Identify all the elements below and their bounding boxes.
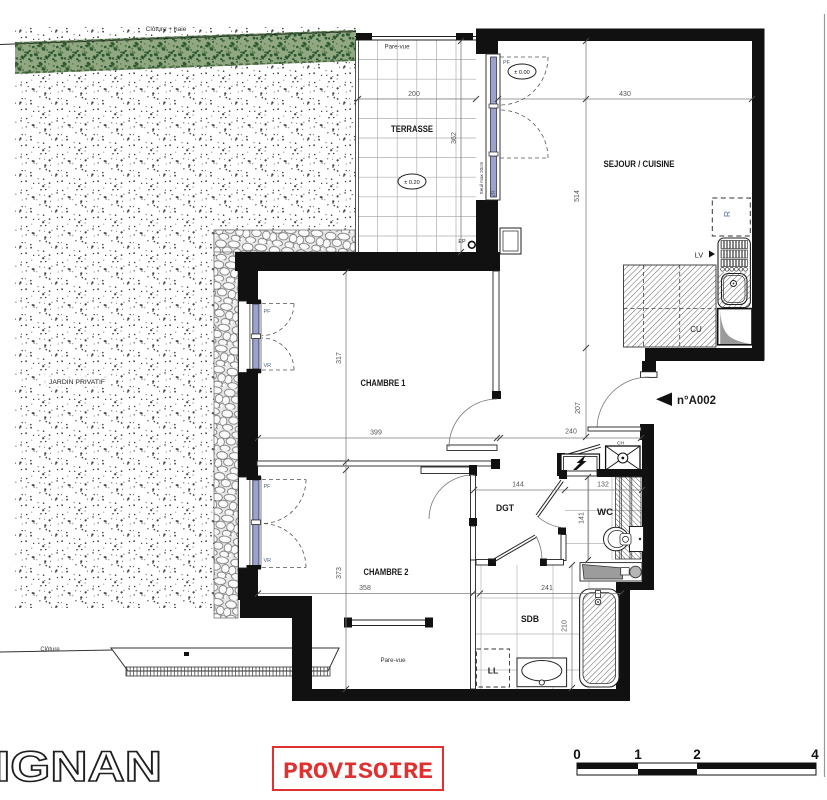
svg-text:240: 240 (565, 429, 577, 436)
svg-text:210: 210 (562, 620, 569, 632)
svg-text:± 0.00: ± 0.00 (514, 70, 530, 76)
svg-text:EP: EP (458, 239, 466, 245)
svg-text:132: 132 (597, 482, 609, 489)
svg-text:VR: VR (491, 190, 497, 197)
svg-text:373: 373 (336, 567, 343, 579)
svg-text:VR: VR (264, 363, 272, 369)
svg-text:Clôture: Clôture (40, 647, 60, 653)
svg-text:362: 362 (451, 132, 458, 144)
svg-text:PF: PF (264, 309, 272, 315)
svg-text:4: 4 (811, 747, 819, 762)
svg-text:LL: LL (488, 666, 498, 676)
svg-text:317: 317 (336, 352, 343, 364)
svg-text:Seuil max 20cm: Seuil max 20cm (479, 161, 484, 194)
svg-text:JARDIN PRIVATIF: JARDIN PRIVATIF (49, 379, 105, 386)
svg-text:Pare-vue: Pare-vue (384, 44, 410, 51)
svg-text:n°A002: n°A002 (677, 393, 716, 407)
svg-text:2: 2 (693, 747, 701, 762)
svg-text:0: 0 (573, 747, 581, 762)
svg-text:SEJOUR / CUISINE: SEJOUR / CUISINE (604, 159, 675, 170)
svg-text:± 0.20: ± 0.20 (404, 180, 420, 186)
svg-text:CHAMBRE 2: CHAMBRE 2 (364, 567, 409, 578)
svg-text:CH: CH (617, 441, 624, 447)
svg-text:Clôture + haie: Clôture + haie (146, 26, 187, 33)
svg-text:DGT: DGT (496, 503, 514, 514)
svg-text:R: R (722, 211, 732, 217)
svg-text:LV: LV (695, 251, 704, 260)
svg-text:207: 207 (575, 402, 582, 414)
svg-text:399: 399 (370, 430, 382, 437)
svg-text:358: 358 (359, 585, 371, 592)
svg-text:430: 430 (619, 91, 631, 98)
svg-text:IGNAN: IGNAN (0, 743, 162, 791)
svg-text:VR: VR (264, 558, 272, 564)
svg-text:200: 200 (408, 91, 420, 98)
svg-text:PF: PF (503, 60, 511, 66)
svg-text:144: 144 (512, 482, 524, 489)
svg-text:CU: CU (690, 325, 702, 334)
svg-text:141: 141 (579, 512, 586, 524)
svg-text:TERRASSE: TERRASSE (391, 124, 433, 135)
svg-text:Pare-vue: Pare-vue (380, 657, 406, 664)
svg-text:PF: PF (264, 484, 272, 490)
svg-text:PROVISOIRE: PROVISOIRE (283, 759, 433, 785)
svg-text:1: 1 (634, 747, 642, 762)
svg-text:SDB: SDB (521, 614, 539, 625)
svg-text:WC: WC (597, 507, 613, 518)
svg-text:241: 241 (541, 585, 553, 592)
svg-text:514: 514 (574, 190, 581, 202)
svg-text:CHAMBRE 1: CHAMBRE 1 (361, 378, 407, 389)
